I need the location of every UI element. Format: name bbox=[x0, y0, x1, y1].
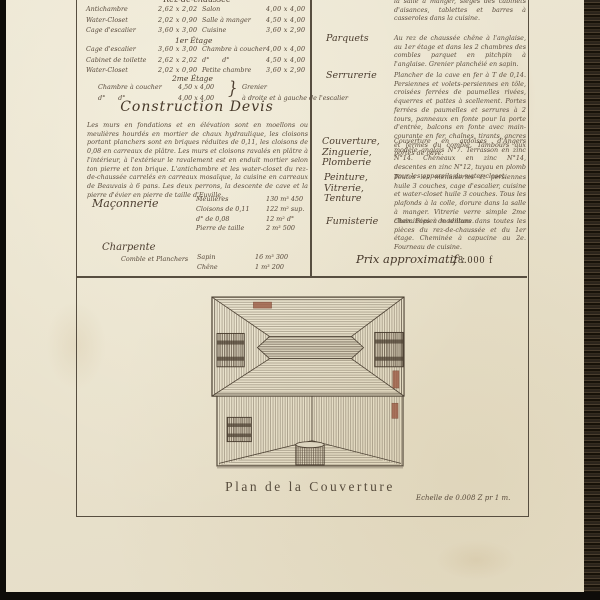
price-value: 28.000 f bbox=[452, 255, 493, 266]
label-stamp bbox=[253, 302, 271, 308]
room-dimensions: 2,02 x 0,90 bbox=[158, 17, 202, 24]
item-value: 12 m² d° bbox=[266, 216, 318, 223]
maconnerie-items: Meulières 130 m³ 450 Cloisons de 0,11 12… bbox=[196, 196, 318, 233]
menuiserie-continuation-text: la salle à manger, sièges des cabinets d… bbox=[394, 0, 526, 23]
room-name: Water-Closet bbox=[86, 17, 158, 24]
room-dimensions: 4,50 x 4,00 bbox=[266, 57, 312, 64]
room-name: Salon bbox=[202, 6, 266, 13]
section-label: Couverture, Zinguerie, Plomberie bbox=[322, 137, 394, 169]
item-value: 130 m³ 450 bbox=[266, 196, 318, 203]
room-name: Chambre à coucher bbox=[98, 84, 178, 91]
room-name: Water-Closet bbox=[86, 67, 158, 74]
room-dimensions: 3,60 x 3,00 bbox=[158, 27, 202, 34]
chimney-small-left-icon bbox=[227, 417, 251, 441]
scanned-document-photo: Rez-de-chaussée Antichambre 2,62 x 2,02 … bbox=[0, 0, 600, 600]
item-name: Chêne bbox=[197, 264, 255, 271]
label-stamp bbox=[393, 371, 399, 388]
charpente-label: Charpente bbox=[102, 242, 156, 253]
grenier-note: Grenier bbox=[242, 84, 360, 91]
charpente-sublabel: Comble et Planchers bbox=[121, 256, 188, 263]
drawing-scale-note: Echelle de 0.008 Z pr 1 m. bbox=[416, 494, 524, 502]
floor-dimensions-table: Antichambre 2,62 x 2,02 Salon 4,00 x 4,0… bbox=[86, 6, 312, 35]
section-label: Serrurerie bbox=[326, 71, 398, 82]
chimney-bottom-icon bbox=[296, 442, 324, 465]
room-name: Antichambre bbox=[86, 6, 158, 13]
page-binding-edge bbox=[584, 0, 600, 592]
section-label: Peinture, Vitrerie, Tenture bbox=[324, 173, 396, 205]
item-value: 122 m² sup. bbox=[266, 206, 318, 213]
room-name: Cabinet de toilette bbox=[86, 57, 158, 64]
item-value: 2 m³ 500 bbox=[266, 225, 318, 232]
room-name: d° d° bbox=[202, 57, 266, 64]
item-name: Cloisons de 0,11 bbox=[196, 206, 266, 213]
room-dimensions: 4,50 x 4,00 bbox=[266, 17, 312, 24]
room-dimensions: 2,62 x 2,02 bbox=[158, 57, 202, 64]
devis-intro-paragraph: Les murs en fondations et en élévation s… bbox=[87, 121, 308, 199]
room-name: Cage d'escalier bbox=[86, 27, 158, 34]
section-label: Parquets bbox=[326, 34, 398, 45]
room-name: Salle à manger bbox=[202, 17, 266, 24]
room-dimensions: 4,00 x 4,00 bbox=[266, 6, 312, 13]
room-name: Cuisine bbox=[202, 27, 266, 34]
maconnerie-label: Maçonnerie bbox=[92, 197, 159, 210]
item-name: Meulières bbox=[196, 196, 266, 203]
room-dimensions: 3,60 x 3,00 bbox=[158, 46, 202, 53]
label-stamp bbox=[392, 403, 398, 418]
roof-plan-drawing bbox=[208, 294, 412, 476]
room-dimensions: 3,60 x 2,90 bbox=[266, 27, 312, 34]
floor-dimensions-table-1er: Cage d'escalier 3,60 x 3,00 Chambre à co… bbox=[86, 46, 312, 75]
room-dimensions: 4,50 x 4,00 bbox=[178, 84, 228, 91]
item-value: 1 m³ 200 bbox=[255, 264, 307, 271]
item-value: 16 m³ 300 bbox=[255, 254, 307, 261]
drawing-caption: Plan de la Couverture bbox=[196, 479, 424, 495]
price-label: Prix approximatif : bbox=[356, 252, 465, 266]
floor-table-header-2me: 2me Étage bbox=[172, 74, 213, 83]
room-name: Cage d'escalier bbox=[86, 46, 158, 53]
item-name: Sapin bbox=[197, 254, 255, 261]
item-name: d° de 0,08 bbox=[196, 216, 266, 223]
chimney-right-icon bbox=[375, 332, 403, 366]
item-name: Pierre de taille bbox=[196, 225, 266, 232]
paper-stain bbox=[436, 540, 516, 580]
room-name: Chambre à coucher bbox=[202, 46, 266, 53]
section-text: Cheminées à modillons dans toutes les pi… bbox=[394, 217, 526, 252]
section-label: Fumisterie bbox=[326, 217, 398, 228]
room-dimensions: 3,60 x 2,90 bbox=[266, 67, 312, 74]
chimney-left-icon bbox=[217, 333, 244, 366]
section-text: Au rez de chaussée chêne à l'anglaise, a… bbox=[394, 34, 526, 69]
charpente-items: Sapin 16 m³ 300 Chêne 1 m³ 200 bbox=[197, 254, 307, 271]
section-divider-line bbox=[77, 276, 527, 278]
floor-table-header-rdc: Rez-de-chaussée bbox=[86, 0, 308, 4]
column-divider-line bbox=[310, 0, 312, 277]
floor-table-header-1er: 1er Étage bbox=[175, 36, 212, 45]
room-dimensions: 4,00 x 4,00 bbox=[266, 46, 312, 53]
brace-glyph: } bbox=[228, 83, 238, 92]
construction-devis-title: Construction Devis bbox=[86, 99, 308, 115]
room-dimensions: 2,62 x 2,02 bbox=[158, 6, 202, 13]
